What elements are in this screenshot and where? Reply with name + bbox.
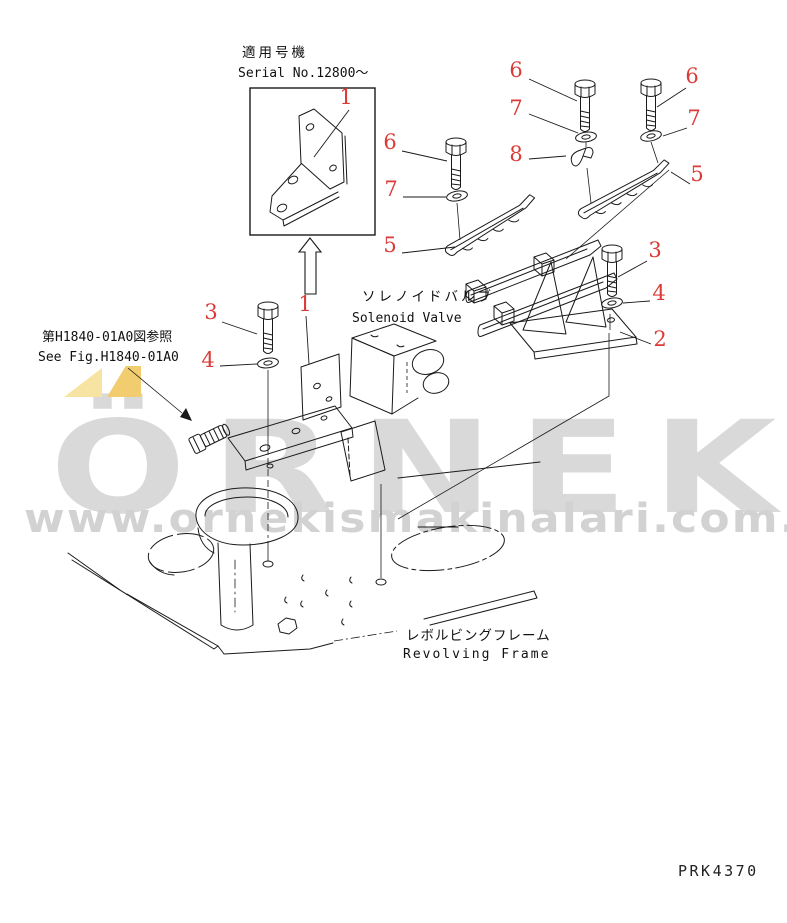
revolving-frame-label-jp: レボルビングフレーム	[406, 628, 551, 644]
rail-left	[440, 193, 543, 259]
bolt-6-a	[446, 138, 466, 190]
up-arrow-icon	[299, 238, 321, 294]
callout-number-7: 7	[687, 106, 700, 130]
callout-number-6: 6	[685, 64, 698, 88]
solenoid-valve-label-en: Solenoid Valve	[352, 311, 462, 326]
serial-note-jp: 適用号機	[242, 44, 308, 61]
solenoid-valve-body	[350, 324, 451, 414]
callout-number-4: 4	[652, 281, 665, 305]
washer-7-a	[446, 189, 468, 202]
callout-number-4: 4	[201, 348, 214, 372]
callout-leader-line	[529, 156, 566, 159]
callout-number-8: 8	[509, 142, 522, 166]
callout-leader-line	[618, 261, 647, 277]
callout-leader-line	[671, 172, 690, 184]
washer-7-c	[640, 129, 663, 143]
callout-leader-line	[402, 247, 455, 253]
callout-number-1: 1	[339, 85, 352, 109]
callout-leader-line	[529, 79, 577, 101]
callout-leader-line	[314, 110, 349, 157]
washer-4-right	[601, 296, 623, 309]
callout-leader-line	[663, 128, 687, 136]
see-fig-label-en: See Fig.H1840-01A0	[38, 350, 179, 365]
bolt-3-left	[258, 302, 278, 354]
callout-leader-line	[220, 364, 257, 366]
serial-note-en: Serial No.12800〜	[238, 66, 368, 81]
callout-leader-line	[222, 322, 257, 334]
bolt-6-b	[575, 80, 595, 132]
diagram-svg: 適用号機 Serial No.12800〜	[0, 0, 787, 923]
callout-number-7: 7	[509, 96, 522, 120]
revolving-frame-label-en: Revolving Frame	[403, 647, 550, 662]
callout-number-7: 7	[384, 177, 397, 201]
callout-leader-line	[620, 332, 651, 344]
parts-diagram-page: ÖRNEK www.ornekismakinalari.com.tr	[0, 0, 787, 923]
callout-leader-line	[529, 114, 578, 133]
callout-number-6: 6	[509, 58, 522, 82]
centerlines	[268, 142, 669, 641]
bolt-6-c	[641, 79, 661, 131]
callout-leader-line	[306, 316, 309, 364]
elbow-fitting	[571, 148, 593, 166]
callout-number-6: 6	[383, 130, 396, 154]
solenoid-valve-label-jp: ソレノイドバルブ	[362, 288, 494, 305]
callout-number-5: 5	[383, 233, 396, 257]
drain-plug	[188, 421, 232, 454]
washer-7-b	[575, 131, 597, 143]
arrowhead-icon	[180, 408, 192, 421]
callout-leader-line	[623, 301, 650, 303]
callout-number-3: 3	[648, 238, 661, 262]
see-fig-arrow	[128, 368, 192, 421]
callout-leader-line	[402, 151, 447, 161]
callout-number-3: 3	[204, 300, 217, 324]
revolving-frame	[68, 462, 540, 654]
washer-4-left	[257, 357, 279, 369]
callout-number-1: 1	[298, 292, 311, 316]
callout-number-5: 5	[690, 162, 703, 186]
serial-note: 適用号機 Serial No.12800〜	[238, 44, 375, 235]
see-fig-label-jp: 第H1840-01A0図参照	[42, 329, 172, 345]
mounting-bracket	[228, 354, 385, 481]
callout-number-2: 2	[653, 327, 666, 351]
rail-right	[573, 159, 676, 223]
reference-bracket	[270, 109, 347, 226]
drawing-number: PRK4370	[678, 862, 759, 880]
